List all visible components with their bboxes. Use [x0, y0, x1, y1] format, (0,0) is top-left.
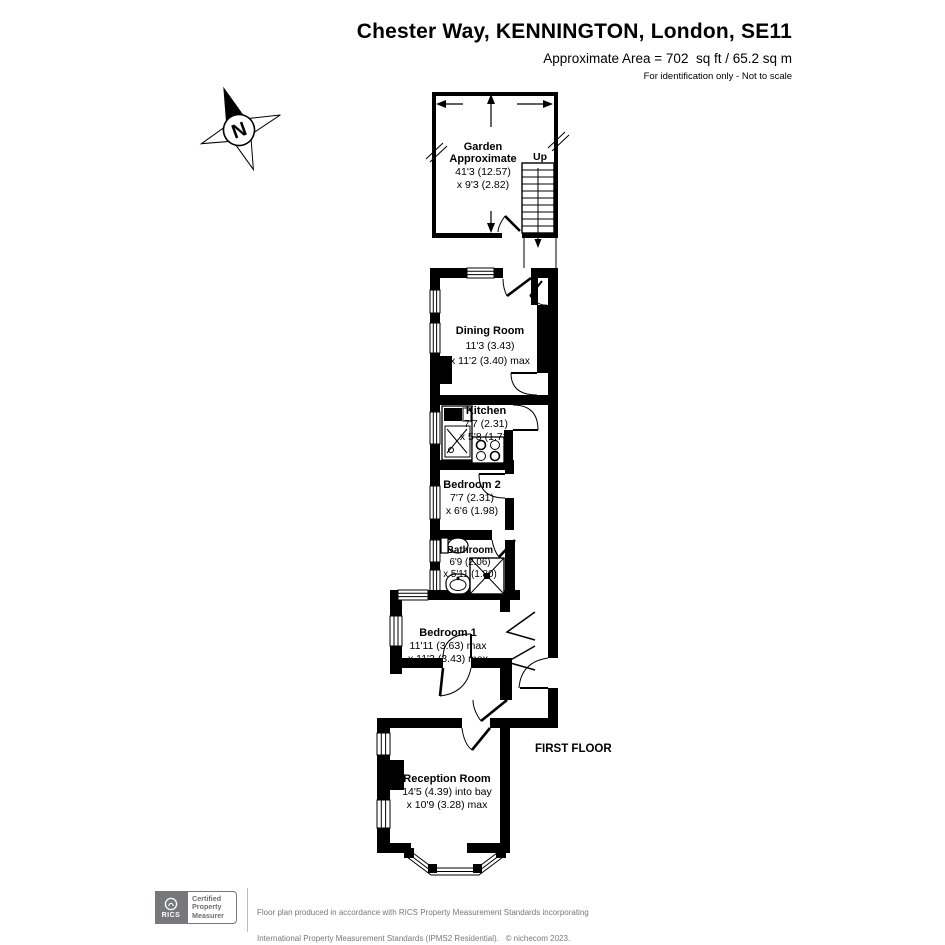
room-name-2: Approximate [449, 153, 516, 165]
certified-property-measurer-badge: Certified Property Measurer [187, 891, 237, 924]
room-name: Bathroom [447, 545, 494, 556]
kitchen-label: Kitchen 7'7 (2.31) x 5'8 (1.73) [460, 405, 512, 443]
door [511, 373, 537, 395]
room-dim-1: 11'11 (3.63) max [410, 640, 488, 652]
stairs [522, 163, 556, 268]
garden-door [498, 216, 520, 232]
garden-label: Garden Approximate 41'3 (12.57) x 9'3 (2… [449, 141, 516, 191]
floor-label: FIRST FLOOR [535, 743, 612, 755]
room-dim-2: x 5'8 (1.73) [460, 431, 512, 443]
room-dim-2: x 11'3 (3.43) max [408, 653, 489, 665]
rics-wordmark: RICS [162, 912, 181, 919]
bathroom-label: Bathroom 6'9 (2.06) x 5'11 (1.80) [443, 545, 496, 580]
room-dim-1: 7'7 (2.31) [464, 418, 508, 430]
window [377, 733, 390, 755]
window [430, 323, 440, 353]
room-dim-2: x 10'9 (3.28) max [407, 799, 489, 811]
bedroom1-label: Bedroom 1 11'11 (3.63) max x 11'3 (3.43)… [408, 627, 489, 665]
room-dim-2: x 5'11 (1.80) [443, 569, 496, 580]
compass-rose-icon: N [186, 72, 295, 183]
room-dim-1: 11'3 (3.43) [465, 340, 514, 352]
bedroom2-label: Bedroom 2 7'7 (2.31) x 6'6 (1.98) [443, 479, 500, 517]
garden-area: Up Garden Approximate 41'3 (12.57) x 9'3… [426, 92, 569, 268]
room-dim-2: x 11'2 (3.40) max [450, 355, 531, 367]
reception-room-label: Reception Room 14'5 (4.39) into bay x 10… [402, 773, 492, 811]
room-name: Bedroom 1 [419, 627, 476, 639]
disclaimer-line: Floor plan produced in accordance with R… [257, 909, 589, 918]
room-name: Dining Room [456, 325, 525, 337]
room-dim-2: x 6'6 (1.98) [446, 505, 498, 517]
door [519, 658, 548, 688]
window [377, 800, 390, 828]
room-dim-1: 6'9 (2.06) [449, 557, 490, 568]
window [430, 540, 440, 562]
window [430, 290, 440, 313]
room-name: Reception Room [403, 773, 491, 785]
badge-line: Measurer [192, 912, 236, 920]
stairs-up-label: Up [533, 151, 547, 163]
dining-room-label: Dining Room 11'3 (3.43) x 11'2 (3.40) ma… [450, 325, 531, 367]
room-dim-1: 14'5 (4.39) into bay [402, 786, 492, 798]
room-dim-1: 41'3 (12.57) [455, 166, 511, 178]
footer-disclaimer: Floor plan produced in accordance with R… [257, 892, 589, 945]
rics-emblem-icon [164, 897, 178, 911]
rics-logo: RICS [155, 891, 187, 924]
window [430, 412, 440, 444]
window [390, 616, 402, 646]
door [462, 728, 490, 750]
disclaimer-line: International Property Measurement Stand… [257, 935, 589, 944]
door [473, 700, 507, 721]
door [513, 405, 538, 430]
window [467, 268, 494, 278]
floorplan-drawing: N [0, 0, 945, 945]
floorplan-page: Chester Way, KENNINGTON, London, SE11 Ap… [0, 0, 945, 945]
footer-divider [247, 888, 248, 932]
door [503, 278, 531, 296]
window [430, 486, 440, 519]
room-dim-1: 7'7 (2.31) [450, 492, 494, 504]
room-dim-2: x 9'3 (2.82) [457, 179, 509, 191]
room-name: Garden [464, 141, 503, 153]
room-name: Kitchen [466, 405, 507, 417]
room-name: Bedroom 2 [443, 479, 500, 491]
window [398, 590, 428, 600]
window [430, 570, 440, 592]
